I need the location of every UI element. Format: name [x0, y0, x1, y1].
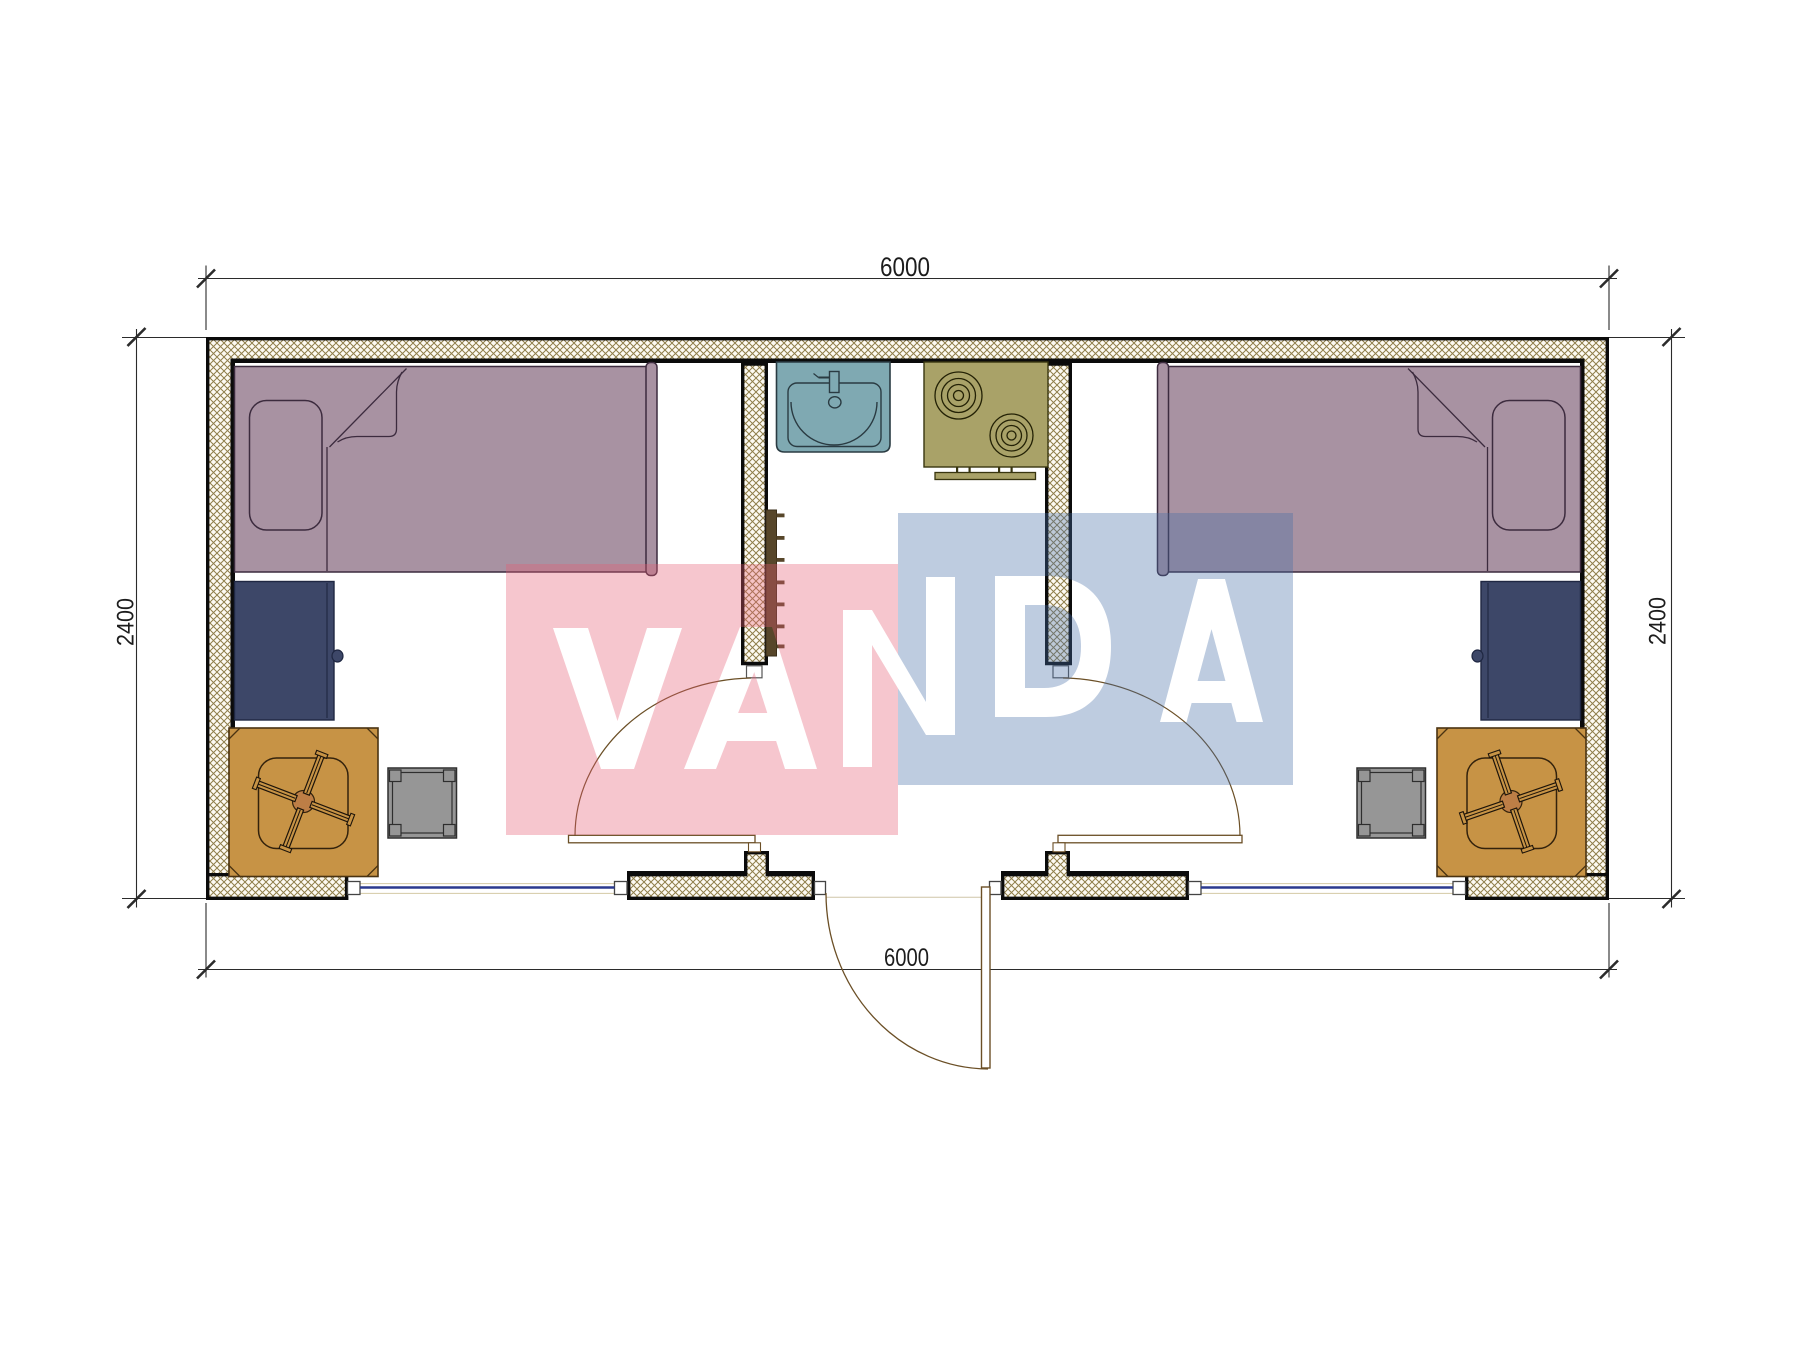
- svg-text:2400: 2400: [1645, 597, 1672, 645]
- svg-text:6000: 6000: [884, 944, 929, 972]
- svg-text:6000: 6000: [880, 252, 930, 282]
- svg-text:2400: 2400: [113, 598, 140, 646]
